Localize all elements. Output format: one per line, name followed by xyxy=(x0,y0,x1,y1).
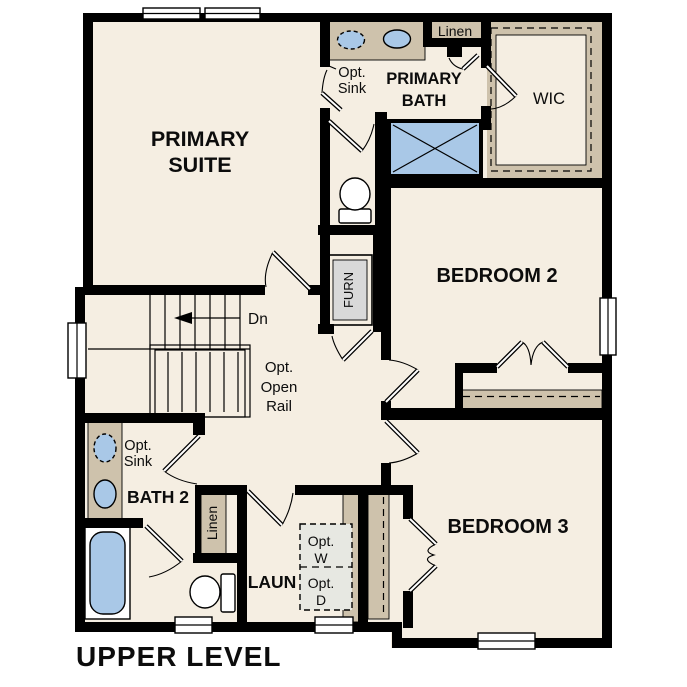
water-closet xyxy=(339,178,371,223)
bath2-label: BATH 2 xyxy=(127,487,189,507)
optional-sink-basin xyxy=(338,31,365,49)
wic-label: WIC xyxy=(533,90,565,108)
opt-open-rail-label-3: Rail xyxy=(266,398,292,415)
toilet-tank xyxy=(339,209,371,223)
laundry-label: LAUN xyxy=(248,572,297,592)
toilet-bowl xyxy=(340,178,370,210)
opt-dryer-label-1: Opt. xyxy=(308,575,334,591)
furnace-closet: FURN xyxy=(328,255,372,325)
bedroom2-closet-shelf xyxy=(461,390,602,409)
window xyxy=(478,633,535,649)
window xyxy=(68,323,86,378)
furnace-label: FURN xyxy=(341,272,356,308)
wic: WIC xyxy=(487,22,602,178)
toilet-bowl xyxy=(190,576,220,608)
primary-suite-label-2: SUITE xyxy=(168,153,231,177)
window xyxy=(175,617,212,633)
sink-basin xyxy=(94,480,116,508)
optional-sink-basin xyxy=(94,434,116,462)
opt-washer-label-2: W xyxy=(314,550,328,566)
sink-basin xyxy=(384,30,411,48)
plan-title: UPPER LEVEL xyxy=(76,641,281,672)
opt-sink-label-2: Sink xyxy=(338,81,367,97)
window xyxy=(315,617,353,633)
opt-washer-label-1: Opt. xyxy=(308,533,334,549)
toilet-tank xyxy=(221,574,235,612)
opt-dryer-label-2: D xyxy=(316,592,326,608)
bedroom3-closet-shelf xyxy=(368,493,389,619)
window xyxy=(205,8,260,19)
primary-bath-label-2: BATH xyxy=(402,92,447,110)
primary-bath-label-1: PRIMARY xyxy=(386,70,461,88)
hall-linen: Linen xyxy=(201,492,226,555)
bath2-opt-sink-label-1: Opt. xyxy=(124,438,151,454)
bathtub xyxy=(90,532,125,614)
bath2-opt-sink-label-2: Sink xyxy=(124,454,153,470)
linen-upper: Linen xyxy=(430,20,481,40)
opt-open-rail-label-2: Open xyxy=(261,379,298,396)
bedroom3-label: BEDROOM 3 xyxy=(447,516,568,538)
opt-sink-label-1: Opt. xyxy=(338,65,365,81)
window xyxy=(600,298,616,355)
primary-suite-label-1: PRIMARY xyxy=(151,127,249,151)
opt-open-rail-label-1: Opt. xyxy=(265,359,293,376)
down-label: Dn xyxy=(248,311,268,328)
linen-upper-label: Linen xyxy=(438,23,472,39)
hall-linen-label: Linen xyxy=(204,506,220,540)
floor-plan: WIC Opt. Sink PRIMARY BATH Linen FURN BE… xyxy=(0,0,687,687)
window xyxy=(143,8,200,19)
bedroom2-label: BEDROOM 2 xyxy=(436,265,557,287)
